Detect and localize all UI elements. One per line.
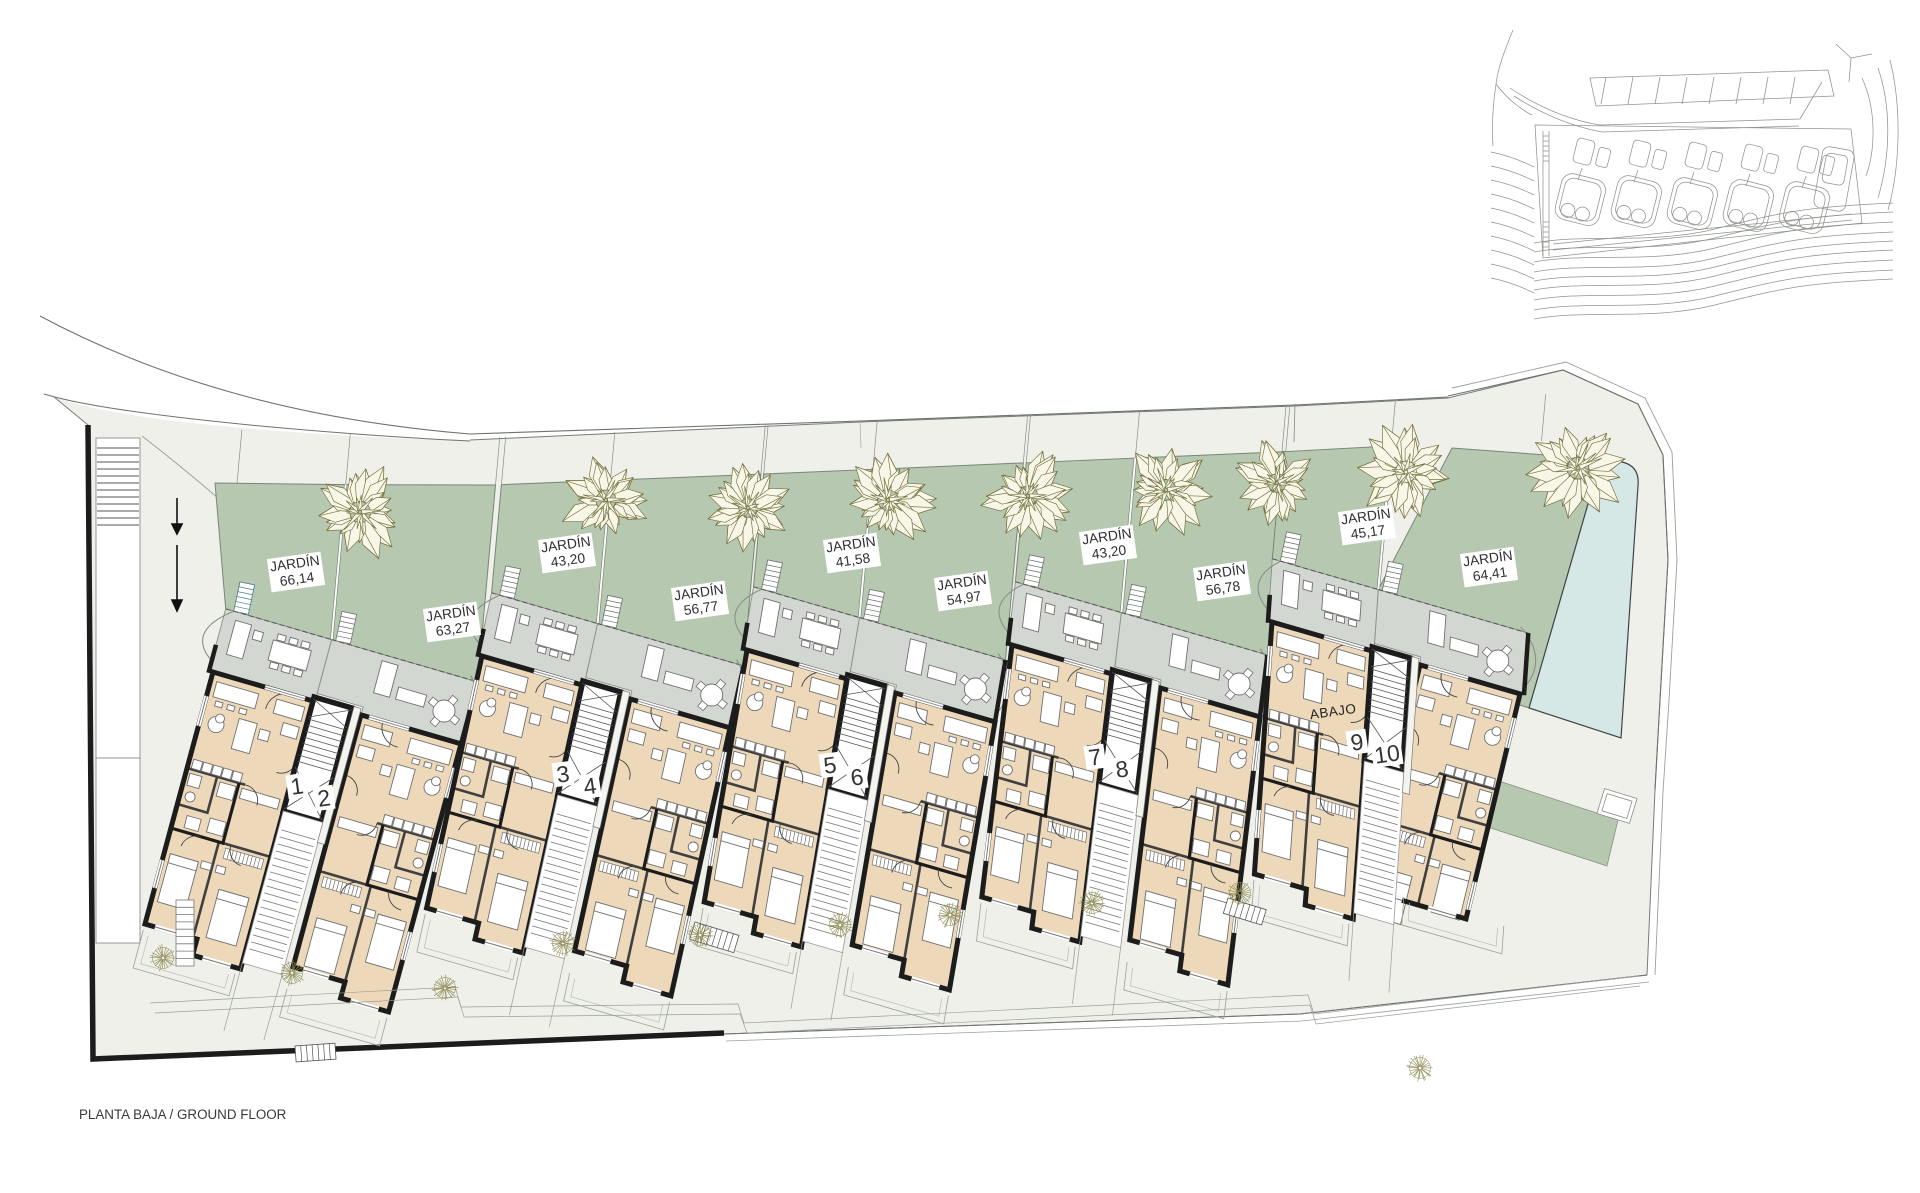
svg-text:10: 10 xyxy=(1373,739,1402,768)
svg-text:PLANTA BAJA / GROUND FLOOR: PLANTA BAJA / GROUND FLOOR xyxy=(79,1107,287,1122)
